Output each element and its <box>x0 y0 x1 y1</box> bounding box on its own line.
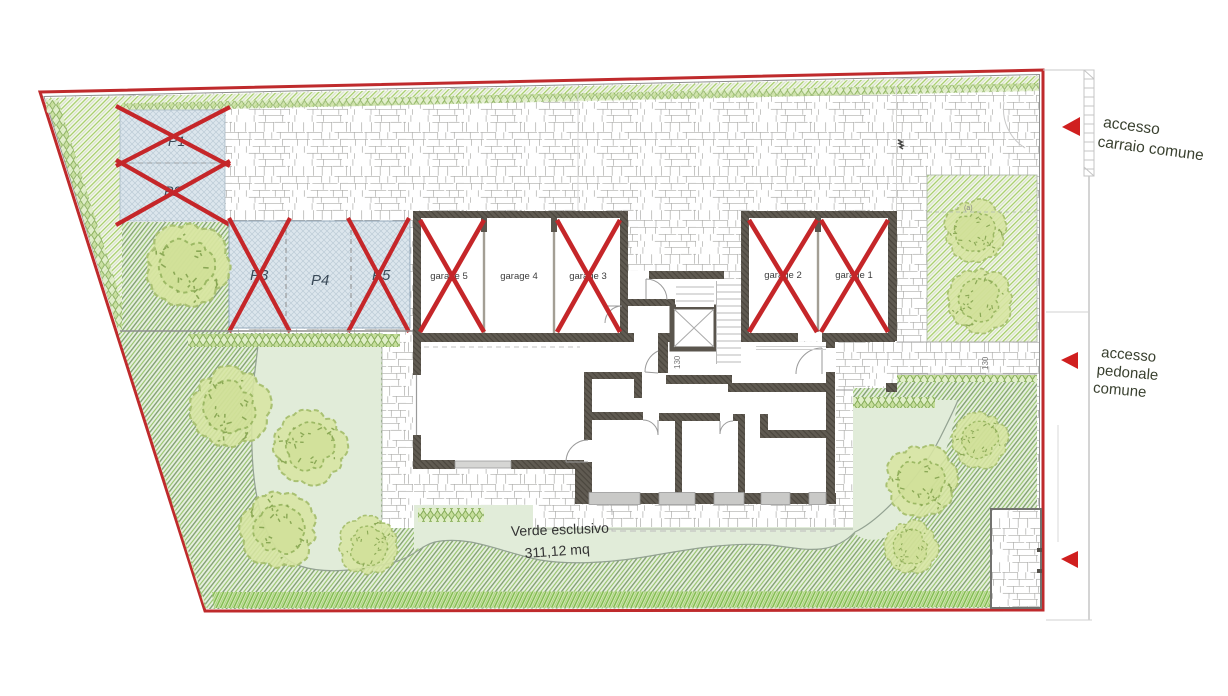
svg-text:comune: comune <box>1092 379 1147 401</box>
svg-text:carraio comune: carraio comune <box>1097 134 1205 165</box>
svg-text:P4: P4 <box>311 272 329 289</box>
svg-text:130: 130 <box>673 355 682 369</box>
svg-text:garage 4: garage 4 <box>500 271 538 282</box>
svg-text:Verde esclusivo: Verde esclusivo <box>511 520 610 539</box>
svg-text:130: 130 <box>981 356 990 370</box>
svg-text:(a): (a) <box>964 205 973 212</box>
